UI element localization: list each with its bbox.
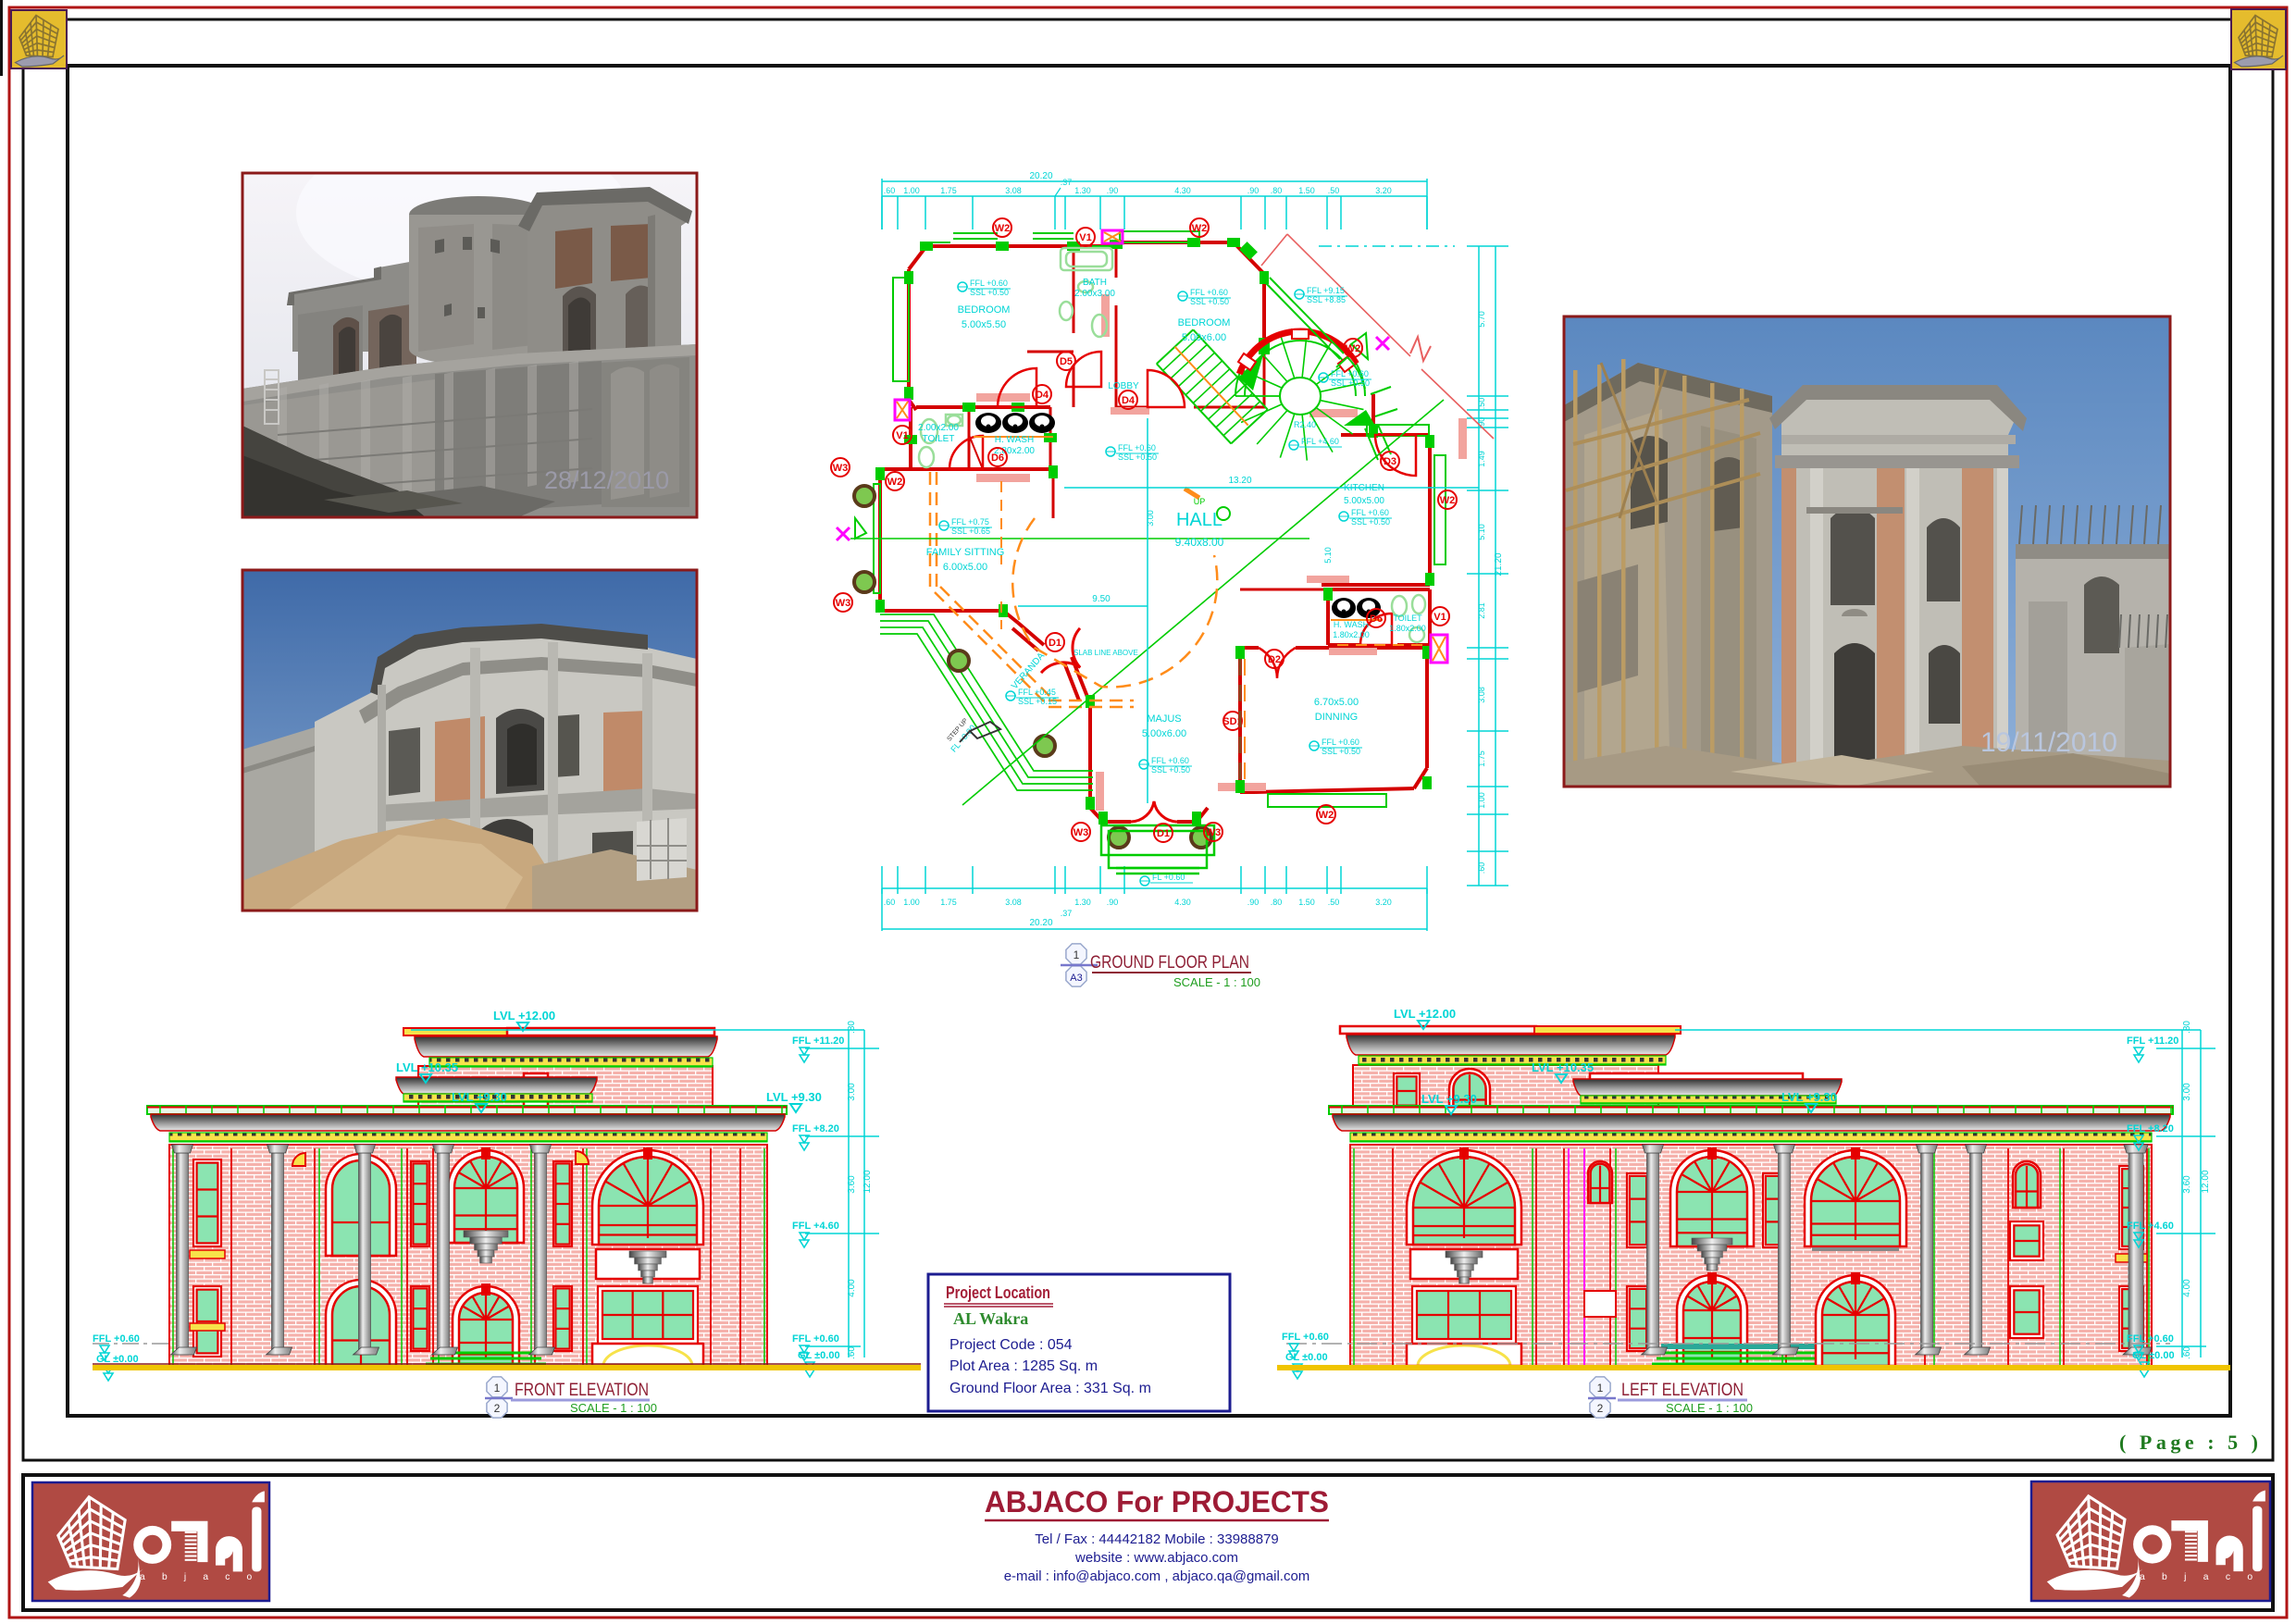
svg-text:FFL +8.20: FFL +8.20: [2127, 1123, 2174, 1134]
svg-text:Ground Floor Area : 331 Sq. m: Ground Floor Area : 331 Sq. m: [949, 1381, 1151, 1396]
svg-text:2.00x3.00: 2.00x3.00: [1074, 289, 1115, 299]
svg-text:W3: W3: [1206, 827, 1222, 838]
svg-text:ABJACO For PROJECTS: ABJACO For PROJECTS: [985, 1485, 1329, 1519]
svg-text:D6: D6: [1370, 614, 1383, 625]
svg-text:3.00: 3.00: [847, 1083, 857, 1101]
svg-text:FFL +0.60: FFL +0.60: [1151, 756, 1189, 765]
svg-text:5.00x6.00: 5.00x6.00: [1182, 332, 1226, 343]
svg-text:a b j a c o: a b j a c o: [140, 1572, 259, 1582]
svg-text:D2: D2: [1268, 654, 1281, 665]
svg-text:Plot Area : 1285 Sq. m: Plot Area : 1285 Sq. m: [949, 1358, 1098, 1374]
svg-text:1.00: 1.00: [903, 898, 920, 907]
svg-text:1.80x2.00: 1.80x2.00: [1333, 630, 1370, 639]
svg-text:FFL +4.60: FFL +4.60: [2127, 1221, 2174, 1232]
svg-text:.60: .60: [884, 898, 896, 907]
svg-text:FRONT ELEVATION: FRONT ELEVATION: [515, 1381, 649, 1400]
svg-text:SLAB LINE ABOVE: SLAB LINE ABOVE: [1074, 649, 1138, 657]
svg-text:H. WASH: H. WASH: [995, 435, 1034, 445]
svg-text:1.80x2.00: 1.80x2.00: [1389, 624, 1426, 633]
svg-text:FFL +0.60: FFL +0.60: [1331, 369, 1369, 378]
svg-text:W2: W2: [995, 223, 1011, 234]
svg-text:BATH: BATH: [1083, 278, 1107, 288]
svg-text:.90: .90: [1107, 186, 1119, 195]
svg-text:Tel / Fax : 44442182 Mobile :: Tel / Fax : 44442182 Mobile : 33988879: [1035, 1531, 1279, 1547]
svg-text:.50: .50: [1477, 398, 1486, 410]
svg-text:20.20: 20.20: [1029, 171, 1052, 181]
svg-text:Project Code : 054: Project Code : 054: [949, 1337, 1073, 1353]
svg-text:SCALE - 1 : 100: SCALE - 1 : 100: [570, 1401, 657, 1415]
svg-text:( Page : 5 ): ( Page : 5 ): [2119, 1431, 2258, 1454]
svg-text:D5: D5: [1060, 356, 1073, 367]
svg-text:21.20: 21.20: [1494, 552, 1504, 576]
svg-text:5.70: 5.70: [1477, 311, 1486, 328]
svg-text:HALL: HALL: [1176, 510, 1222, 530]
svg-text:FFL +4.60: FFL +4.60: [1301, 437, 1339, 446]
svg-text:FFL +4.60: FFL +4.60: [792, 1221, 839, 1232]
svg-text:3.08: 3.08: [1005, 898, 1022, 907]
svg-text:DINNING: DINNING: [1315, 712, 1358, 723]
svg-text:1.75: 1.75: [940, 186, 957, 195]
svg-text:.90: .90: [1247, 898, 1260, 907]
svg-text:5.10: 5.10: [1323, 547, 1333, 564]
svg-text:.80: .80: [847, 1021, 857, 1034]
svg-text:3.00: 3.00: [2182, 1083, 2192, 1101]
svg-text:W2: W2: [887, 477, 903, 488]
svg-text:6.70x5.00: 6.70x5.00: [1314, 697, 1359, 708]
svg-text:12.00: 12.00: [863, 1170, 873, 1193]
svg-text:FFL +0.60: FFL +0.60: [1351, 508, 1389, 517]
svg-text:W2: W2: [1319, 810, 1334, 821]
svg-text:3.00: 3.00: [1146, 510, 1155, 527]
svg-text:MAJUS: MAJUS: [1147, 713, 1181, 725]
svg-text:1.75: 1.75: [940, 898, 957, 907]
svg-text:GL ±0.00: GL ±0.00: [1285, 1352, 1328, 1363]
svg-text:D3: D3: [1384, 456, 1396, 467]
svg-text:FFL +0.60: FFL +0.60: [1322, 738, 1359, 747]
svg-text:13.20: 13.20: [1228, 476, 1251, 486]
svg-text:FL +0.60: FL +0.60: [1152, 873, 1185, 882]
svg-text:LEFT ELEVATION: LEFT ELEVATION: [1621, 1381, 1744, 1400]
svg-text:FFL +0.60: FFL +0.60: [1118, 443, 1156, 452]
svg-text:V1: V1: [1433, 612, 1446, 623]
svg-text:.50: .50: [1328, 898, 1340, 907]
svg-text:.80: .80: [1271, 186, 1283, 195]
svg-text:W3: W3: [833, 463, 849, 474]
svg-text:LVL +9.30: LVL +9.30: [1781, 1090, 1837, 1104]
svg-text:D4: D4: [1036, 390, 1049, 401]
svg-text:FFL +0.60: FFL +0.60: [970, 279, 1008, 288]
svg-text:D6: D6: [991, 452, 1004, 464]
svg-text:LVL +9.30: LVL +9.30: [766, 1090, 822, 1104]
svg-text:LVL +12.00: LVL +12.00: [1394, 1007, 1456, 1021]
svg-text:LOBBY: LOBBY: [1108, 381, 1139, 391]
svg-text:FFL +11.20: FFL +11.20: [2127, 1035, 2178, 1047]
svg-text:3.60: 3.60: [2182, 1175, 2192, 1194]
svg-text:5.10: 5.10: [1477, 524, 1486, 540]
svg-text:3.20: 3.20: [1375, 186, 1392, 195]
svg-text:D4: D4: [1122, 395, 1136, 406]
svg-text:D1: D1: [1157, 828, 1170, 839]
svg-text:FFL +0.60: FFL +0.60: [792, 1333, 839, 1345]
svg-text:1.50: 1.50: [1298, 898, 1315, 907]
svg-text:e-mail : info@abjaco.com , abj: e-mail : info@abjaco.com , abjaco.qa@gma…: [1004, 1568, 1310, 1584]
svg-text:.90: .90: [1107, 898, 1119, 907]
svg-text:.80: .80: [2182, 1021, 2192, 1034]
svg-text:SCALE - 1 : 100: SCALE - 1 : 100: [1173, 975, 1260, 989]
svg-text:D1: D1: [1049, 638, 1061, 649]
svg-text:5.00x6.00: 5.00x6.00: [1142, 728, 1186, 739]
svg-text:4.00: 4.00: [847, 1279, 857, 1297]
svg-text:FAMILY SITTING: FAMILY SITTING: [926, 547, 1005, 558]
svg-text:5.00x5.00: 5.00x5.00: [1344, 496, 1384, 506]
svg-text:W3: W3: [836, 598, 851, 609]
svg-text:W2: W2: [1440, 495, 1456, 506]
svg-text:.60: .60: [884, 186, 896, 195]
svg-text:1.75: 1.75: [1477, 750, 1486, 767]
svg-text:LVL +10.35: LVL +10.35: [396, 1060, 458, 1074]
svg-text:GL ±0.00: GL ±0.00: [96, 1354, 139, 1365]
svg-text:19/11/2010: 19/11/2010: [1980, 727, 2117, 758]
svg-text:FFL +9.15: FFL +9.15: [1307, 286, 1345, 295]
svg-text:TOILET: TOILET: [1393, 614, 1422, 623]
svg-text:H. WASH: H. WASH: [1334, 620, 1369, 629]
svg-text:W2: W2: [1192, 223, 1208, 234]
svg-text:LVL +12.00: LVL +12.00: [493, 1009, 555, 1023]
svg-text:1: 1: [1597, 1382, 1604, 1395]
svg-text:FFL +0.60: FFL +0.60: [1190, 288, 1228, 297]
svg-text:.50: .50: [1328, 186, 1340, 195]
svg-text:3.08: 3.08: [1477, 687, 1486, 703]
svg-text:28/12/2010: 28/12/2010: [544, 466, 669, 494]
svg-text:W3: W3: [1074, 827, 1089, 838]
svg-text:2.81: 2.81: [1477, 602, 1486, 619]
svg-text:FFL +0.60: FFL +0.60: [93, 1333, 140, 1345]
svg-text:AL Wakra: AL Wakra: [953, 1309, 1028, 1328]
svg-text:9.40x8.00: 9.40x8.00: [1175, 536, 1224, 549]
svg-text:.60: .60: [1477, 862, 1486, 874]
svg-text:.90: .90: [1247, 186, 1260, 195]
svg-text:1: 1: [494, 1382, 501, 1395]
svg-text:W2: W2: [1346, 343, 1361, 354]
svg-text:V1: V1: [1079, 232, 1091, 243]
svg-text:FFL +0.45: FFL +0.45: [1018, 688, 1056, 697]
svg-text:2: 2: [494, 1402, 501, 1415]
svg-text:FFL +0.75: FFL +0.75: [951, 517, 989, 527]
svg-text:.60: .60: [847, 1346, 857, 1359]
svg-text:LVL +9.30: LVL +9.30: [452, 1090, 507, 1104]
svg-text:GL ±0.00: GL ±0.00: [798, 1350, 840, 1361]
svg-text:A3: A3: [1070, 973, 1082, 984]
svg-text:1.30: 1.30: [1074, 186, 1091, 195]
svg-text:BEDROOM: BEDROOM: [958, 304, 1011, 316]
svg-text:1.00: 1.00: [1477, 792, 1486, 809]
svg-text:1.49: 1.49: [1477, 451, 1486, 467]
svg-text:LVL +9.30: LVL +9.30: [1421, 1092, 1477, 1106]
svg-text:4.00: 4.00: [2182, 1279, 2192, 1297]
svg-text:.80: .80: [1271, 898, 1283, 907]
svg-text:1.50: 1.50: [1298, 186, 1315, 195]
svg-text:BEDROOM: BEDROOM: [1178, 317, 1231, 329]
svg-text:FFL +0.60: FFL +0.60: [1282, 1332, 1329, 1343]
svg-text:FFL +8.20: FFL +8.20: [792, 1123, 839, 1134]
svg-text:LVL +10.35: LVL +10.35: [1532, 1060, 1594, 1074]
svg-text:GROUND FLOOR PLAN: GROUND FLOOR PLAN: [1090, 953, 1249, 973]
svg-text:UP: UP: [1194, 497, 1206, 506]
svg-text:GL ±0.00: GL ±0.00: [2132, 1350, 2175, 1361]
svg-text:.37: .37: [1061, 909, 1073, 918]
svg-text:1.00: 1.00: [903, 186, 920, 195]
svg-text:9.50: 9.50: [1092, 594, 1111, 604]
svg-text:20.20: 20.20: [1029, 918, 1052, 928]
svg-text:FFL +0.60: FFL +0.60: [2127, 1333, 2174, 1345]
svg-text:Project Location: Project Location: [946, 1283, 1050, 1302]
svg-text:4.30: 4.30: [1174, 186, 1191, 195]
svg-text:website : www.abjaco.com: website : www.abjaco.com: [1074, 1550, 1238, 1566]
svg-text:12.00: 12.00: [2201, 1170, 2211, 1193]
svg-text:.37: .37: [1061, 178, 1073, 187]
svg-text:V1: V1: [896, 430, 908, 441]
svg-text:2.00x2.00: 2.00x2.00: [918, 423, 959, 433]
svg-text:KITCHEN: KITCHEN: [1344, 483, 1384, 493]
svg-text:.60: .60: [2182, 1346, 2192, 1359]
svg-text:FFL +11.20: FFL +11.20: [792, 1035, 844, 1047]
svg-text:2: 2: [1597, 1402, 1604, 1415]
svg-text:1.30: 1.30: [1074, 898, 1091, 907]
svg-text:6.00x5.00: 6.00x5.00: [943, 562, 987, 573]
svg-text:SCALE - 1 : 100: SCALE - 1 : 100: [1666, 1401, 1753, 1415]
svg-text:4.30: 4.30: [1174, 898, 1191, 907]
svg-text:3.20: 3.20: [1375, 898, 1392, 907]
svg-text:TOILET: TOILET: [923, 434, 955, 444]
svg-text:a b j a c o: a b j a c o: [2140, 1572, 2260, 1582]
svg-text:3.60: 3.60: [847, 1175, 857, 1194]
svg-text:5.00x5.50: 5.00x5.50: [962, 319, 1006, 330]
svg-text:1: 1: [1074, 948, 1080, 961]
svg-text:3.08: 3.08: [1005, 186, 1022, 195]
svg-text:R2.40: R2.40: [1294, 420, 1316, 429]
